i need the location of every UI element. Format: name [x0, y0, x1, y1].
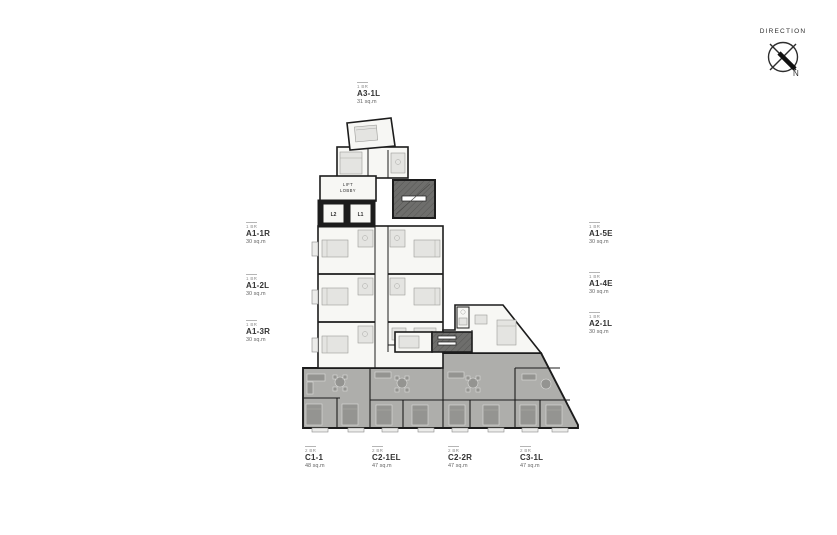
unit-label-a1-4e: 1 BR A1-4E 30 sq.m — [589, 272, 613, 296]
stair-core — [393, 180, 435, 218]
label-rule — [246, 222, 257, 223]
label-rule — [589, 272, 600, 273]
a-tower: LIFT LOBBY L2 L1 — [312, 118, 443, 368]
lift-shafts: L2 L1 — [318, 200, 375, 227]
lift-2-label: L2 — [331, 212, 337, 218]
unit-name: A2-1L — [589, 319, 612, 328]
unit-name: A1-4E — [589, 279, 613, 288]
unit-area: 47 sq.m — [448, 463, 472, 469]
unit-name: C2-2R — [448, 453, 472, 462]
unit-label-a3-1l: 1 BR A3-1L 31 sq.m — [357, 82, 380, 106]
unit-label-c2-1el: 2 BR C2-1EL 47 sq.m — [372, 446, 401, 470]
unit-name: A1-5E — [589, 229, 613, 238]
unit-label-c1-1: 2 BR C1-1 48 sq.m — [305, 446, 325, 470]
lift-lobby-label-line2: LOBBY — [340, 188, 356, 193]
lift-lobby-label-line1: LIFT — [343, 182, 353, 187]
label-rule — [246, 320, 257, 321]
compass-direction-label: DIRECTION — [760, 28, 807, 35]
label-rule — [372, 446, 383, 447]
upper-block — [337, 147, 408, 178]
unit-area: 30 sq.m — [589, 289, 613, 295]
lift-1-label: L1 — [358, 212, 364, 218]
label-rule — [589, 312, 600, 313]
unit-area: 30 sq.m — [589, 239, 613, 245]
unit-area: 48 sq.m — [305, 463, 325, 469]
unit-area: 30 sq.m — [589, 329, 612, 335]
service-core — [395, 332, 472, 352]
unit-label-a1-1r: 1 BR A1-1R 30 sq.m — [246, 222, 270, 246]
unit-area: 47 sq.m — [520, 463, 543, 469]
unit-label-a2-1l: 1 BR A2-1L 30 sq.m — [589, 312, 612, 336]
label-rule — [520, 446, 531, 447]
unit-label-a1-3r: 1 BR A1-3R 30 sq.m — [246, 320, 270, 344]
unit-area: 30 sq.m — [246, 239, 270, 245]
floorplan-page: LIFT LOBBY L2 L1 — [0, 0, 837, 535]
label-rule — [246, 274, 257, 275]
unit-name: A1-3R — [246, 327, 270, 336]
lift-lobby: LIFT LOBBY — [320, 176, 376, 201]
unit-area: 30 sq.m — [246, 337, 270, 343]
unit-label-c3-1l: 2 BR C3-1L 47 sq.m — [520, 446, 543, 470]
unit-name: A1-2L — [246, 281, 269, 290]
unit-name: C1-1 — [305, 453, 325, 462]
unit-label-c2-2r: 2 BR C2-2R 47 sq.m — [448, 446, 472, 470]
label-rule — [305, 446, 316, 447]
label-rule — [589, 222, 600, 223]
label-rule — [448, 446, 459, 447]
unit-name: A1-1R — [246, 229, 270, 238]
unit-name: C2-1EL — [372, 453, 401, 462]
unit-name: A3-1L — [357, 89, 380, 98]
compass-needle — [779, 53, 795, 69]
compass: DIRECTION N — [760, 28, 807, 78]
unit-area: 30 sq.m — [246, 291, 269, 297]
unit-name: C3-1L — [520, 453, 543, 462]
unit-label-a1-5e: 1 BR A1-5E 30 sq.m — [589, 222, 613, 246]
label-rule — [357, 82, 368, 83]
unit-area: 47 sq.m — [372, 463, 401, 469]
unit-area: 31 sq.m — [357, 99, 380, 105]
floor-plan-drawing: LIFT LOBBY L2 L1 — [0, 0, 837, 535]
unit-label-a1-2l: 1 BR A1-2L 30 sq.m — [246, 274, 269, 298]
compass-north-label: N — [793, 69, 799, 78]
unit-a3-1l-block — [347, 118, 395, 150]
